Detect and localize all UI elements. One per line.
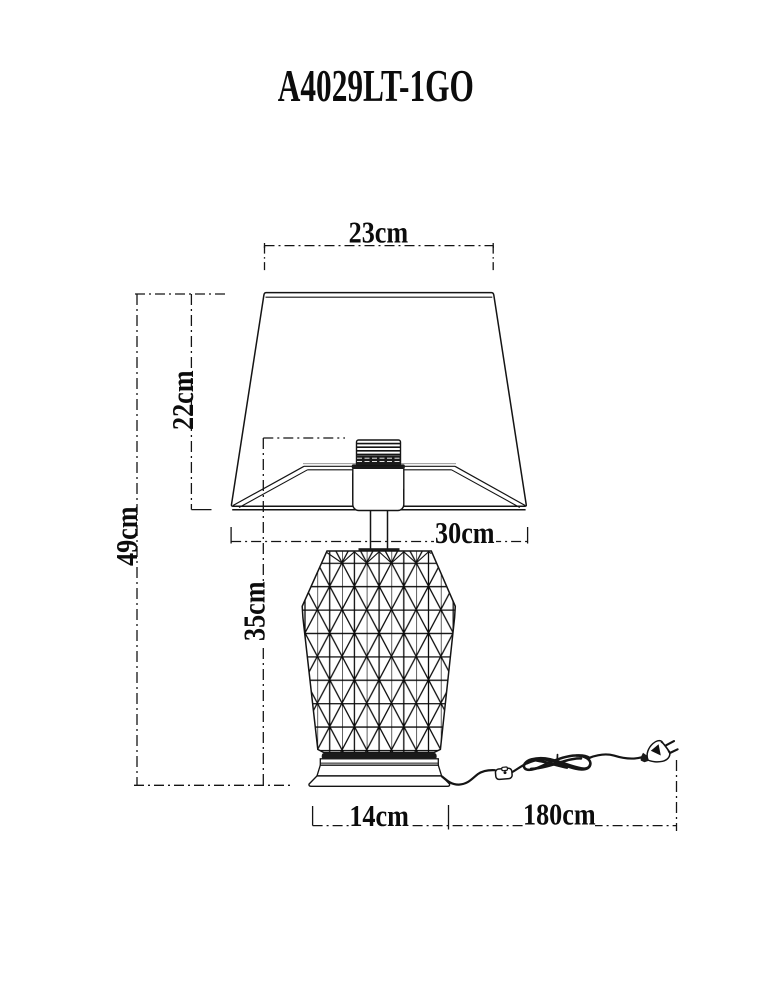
svg-text:23cm: 23cm (349, 217, 409, 250)
svg-text:14cm: 14cm (349, 800, 409, 833)
svg-text:35cm: 35cm (239, 581, 272, 641)
svg-text:22cm: 22cm (167, 370, 200, 430)
svg-text:30cm: 30cm (435, 517, 495, 550)
svg-text:49cm: 49cm (111, 506, 144, 566)
svg-text:A4029LT-1GO: A4029LT-1GO (278, 60, 474, 111)
svg-text:180cm: 180cm (523, 799, 596, 832)
